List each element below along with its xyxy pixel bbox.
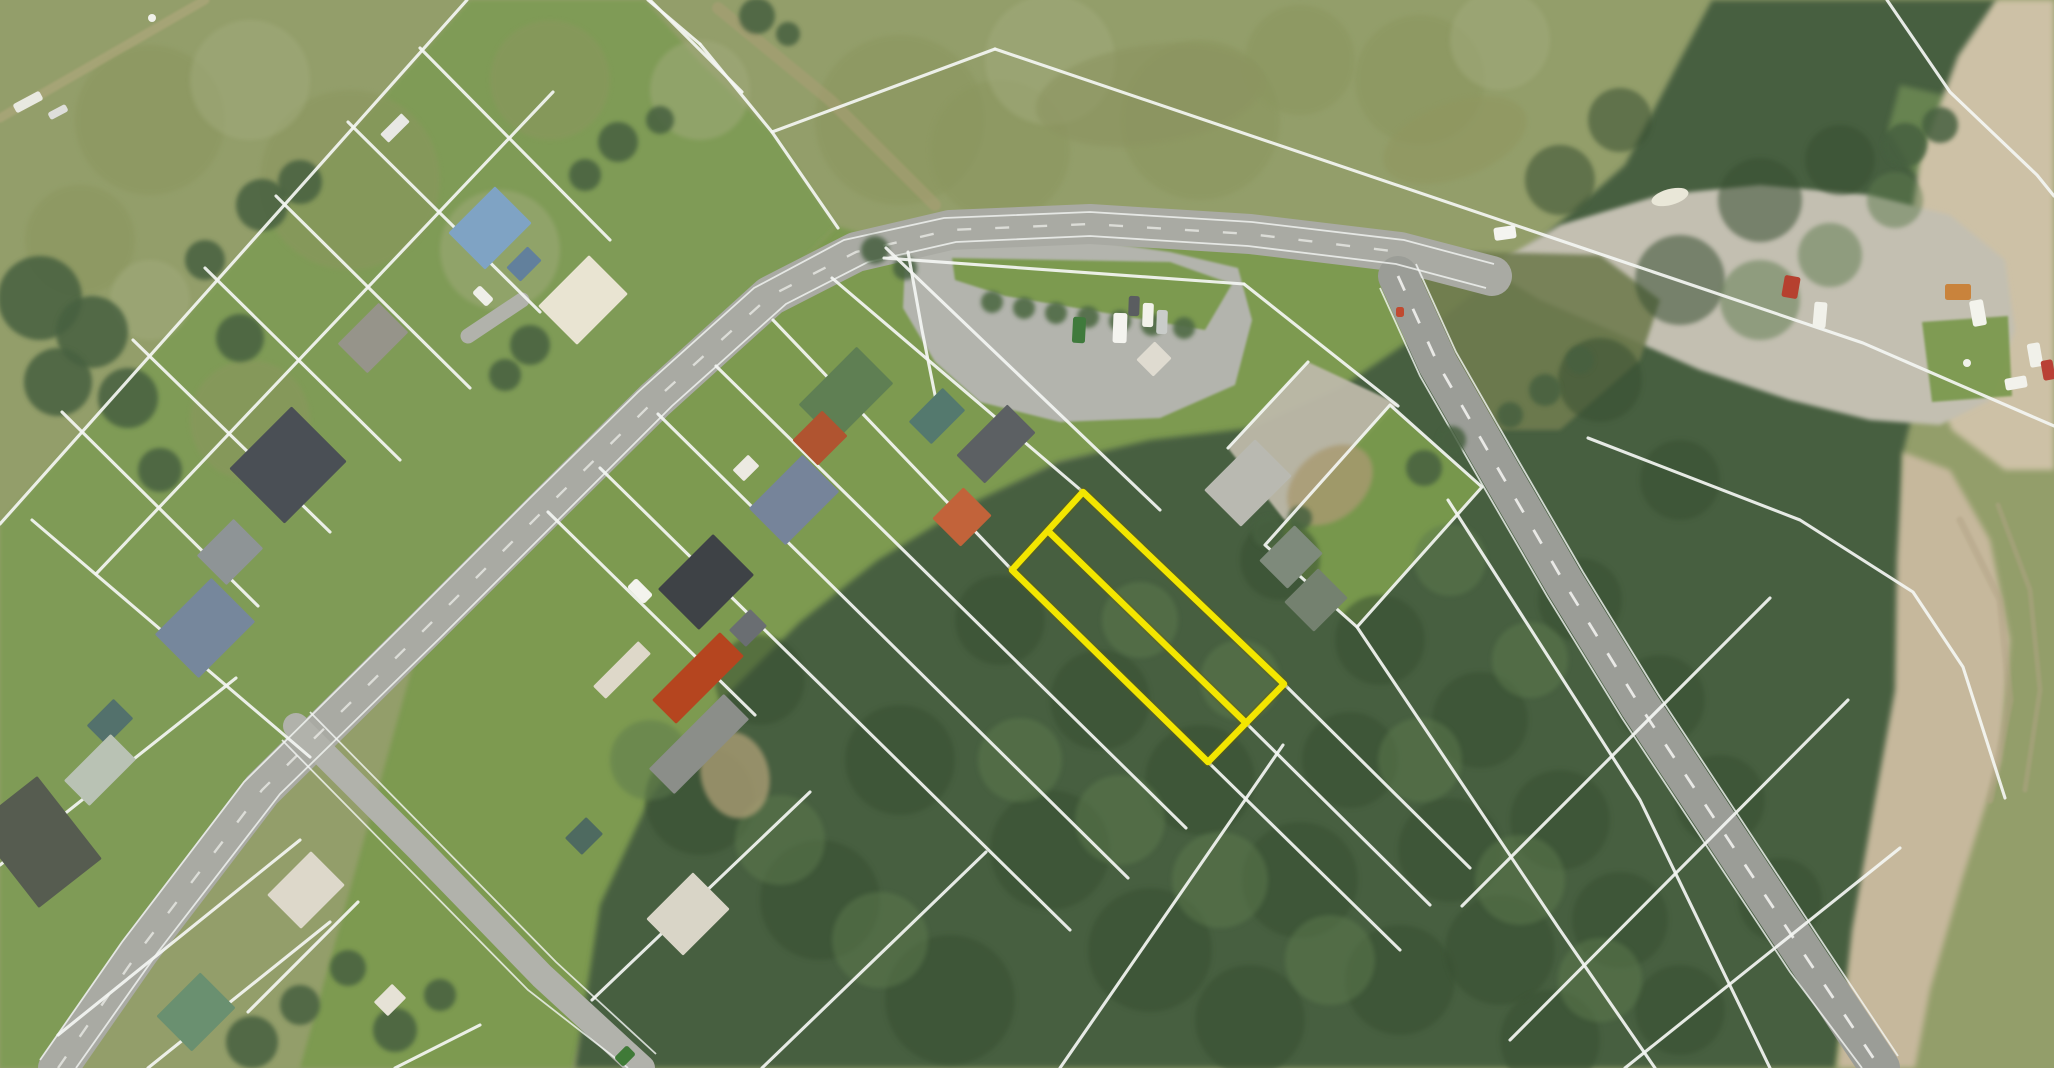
tree (569, 159, 601, 191)
bush-blob (1640, 440, 1720, 520)
bush-blob (1867, 172, 1923, 228)
tree (861, 236, 889, 264)
bush-blob (1635, 965, 1725, 1055)
tree (1883, 123, 1927, 167)
bush-blob (1075, 775, 1165, 865)
tree (1922, 107, 1958, 143)
van-green-parking (1072, 317, 1086, 344)
car-silver-parking (1156, 310, 1168, 334)
bush-blob (1285, 915, 1375, 1005)
tree (216, 314, 264, 362)
tree (330, 950, 366, 986)
tree (98, 368, 158, 428)
digger-orange (1945, 284, 1971, 300)
tree (185, 240, 225, 280)
aerial-map (0, 0, 2054, 1068)
pasture-blob (1245, 5, 1355, 115)
tree (1288, 506, 1312, 530)
pasture-blob (490, 20, 610, 140)
white-dot-paddock (148, 14, 156, 22)
bush-blob (1200, 640, 1280, 720)
bush-blob (1798, 223, 1862, 287)
tree (598, 122, 638, 162)
tree (24, 348, 92, 416)
tree (776, 22, 800, 46)
car-white-parking (1142, 303, 1154, 327)
tree (138, 448, 182, 492)
tree (373, 1008, 417, 1052)
car-white-gravel-1 (1812, 301, 1827, 328)
car-dark-parking (1128, 296, 1140, 316)
bush-blob (1335, 595, 1425, 685)
tree (510, 325, 550, 365)
tree (280, 985, 320, 1025)
white-dot-grass-strip (1963, 359, 1971, 367)
tree (424, 979, 456, 1011)
tree (1406, 450, 1442, 486)
bush-blob (1805, 125, 1875, 195)
tree (646, 106, 674, 134)
aerial-map-viewport[interactable] (0, 0, 2054, 1068)
bush-blob (832, 892, 928, 988)
bush-blob (1172, 832, 1268, 928)
tree (1566, 346, 1594, 374)
tree (489, 359, 521, 391)
bush-blob (1525, 145, 1595, 215)
bush-blob (845, 705, 955, 815)
tree (1497, 402, 1523, 428)
bush-blob (1492, 622, 1568, 698)
bush-blob (1050, 650, 1150, 750)
marker-red-fork (1396, 307, 1404, 317)
tree (1173, 317, 1195, 339)
tree (226, 1016, 278, 1068)
bush-blob (1588, 88, 1652, 152)
tree (1529, 374, 1561, 406)
tree (1013, 297, 1035, 319)
van-white-parking (1112, 313, 1127, 343)
bush-blob (1414, 524, 1486, 596)
bush-blob (1718, 158, 1802, 242)
tree (1045, 302, 1067, 324)
tree (278, 160, 322, 204)
bush-blob (978, 718, 1062, 802)
pasture-blob (190, 20, 310, 140)
tree (981, 291, 1003, 313)
